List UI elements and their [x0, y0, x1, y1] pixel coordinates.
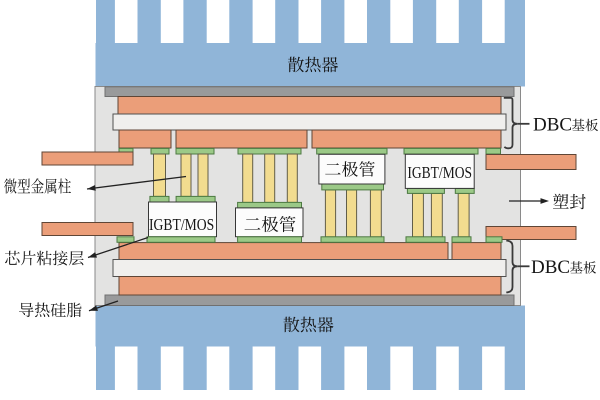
- svg-text:IGBT/MOS: IGBT/MOS: [149, 215, 214, 234]
- svg-text:DBC: DBC: [531, 257, 570, 278]
- svg-text:IGBT/MOS: IGBT/MOS: [407, 163, 472, 182]
- svg-text:DBC: DBC: [533, 115, 572, 136]
